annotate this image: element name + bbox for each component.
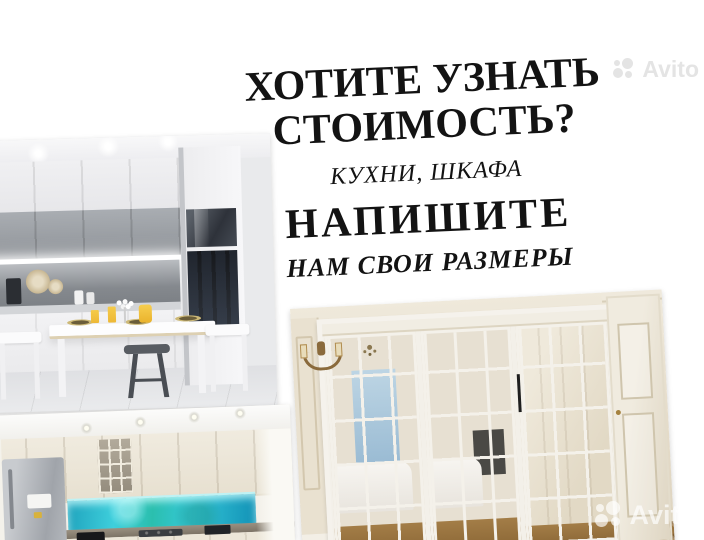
avito-watermark-text: Avito [642,56,699,83]
headline-block: ХОТИТЕ УЗНАТЬ СТОИМОСТЬ? КУХНИ, ШКАФА НА… [241,50,610,285]
sconce-candle [300,344,308,358]
photo-classic-kitchen [0,404,295,540]
white-flowers [117,300,122,305]
avito-logo-dot [606,501,620,515]
counter-jar [74,290,83,304]
black-appliance [204,525,230,535]
headline-subtitle: КУХНИ, ШКАФА [246,152,607,195]
headline-cta: НАПИШИТЕ [247,187,609,251]
avito-watermark-top: Avito [612,56,699,83]
coffee-machine [6,278,22,304]
sliding-wardrobe [317,304,625,540]
photo-modern-kitchen [0,133,277,413]
avito-watermark-bottom: Avito [594,500,697,531]
avito-logo-dot [596,504,604,512]
avito-logo-dot [625,71,632,78]
black-built-in-oven [77,532,106,540]
stainless-fridge [2,457,67,540]
lemonade-pitcher [139,304,152,322]
avito-logo-dot [614,60,620,66]
ad-collage-canvas: ХОТИТЕ УЗНАТЬ СТОИМОСТЬ? КУХНИ, ШКАФА НА… [0,0,704,540]
chair-leg [242,335,249,391]
avito-watermark-text: Avito [630,500,697,531]
counter-jar-small [86,292,94,304]
glass-front-cabinet [97,439,133,494]
gray-mid-cabinets [0,208,181,261]
flower-stem [124,307,126,323]
avito-logo-icon [594,501,624,531]
mirror-door-2 [420,326,522,540]
avito-logo-icon [612,58,636,82]
sconce-backplate [317,341,326,355]
juice-glass [108,306,116,322]
avito-logo-dot [622,58,633,69]
juice-glass [91,310,99,323]
fridge-magnet [27,494,52,509]
plate [71,320,89,325]
avito-logo-dot [611,517,620,526]
upper-white-cabinets [0,158,180,214]
door-panel [617,322,653,400]
avito-logo-dot [613,68,623,78]
fridge-magnet-small [34,512,42,518]
fridge-handle [8,469,14,529]
avito-logo-dot [595,514,608,527]
door-handle [616,410,621,415]
wall-sconce [300,340,344,374]
mirror-glare [194,209,209,247]
mirror-niche [186,208,237,247]
sconce-candle [335,342,343,356]
dark-stool [124,344,170,354]
mirror-grid-lattice [420,326,522,540]
window-light [253,428,295,540]
plate [179,316,197,321]
wardrobe-doors [324,321,617,540]
